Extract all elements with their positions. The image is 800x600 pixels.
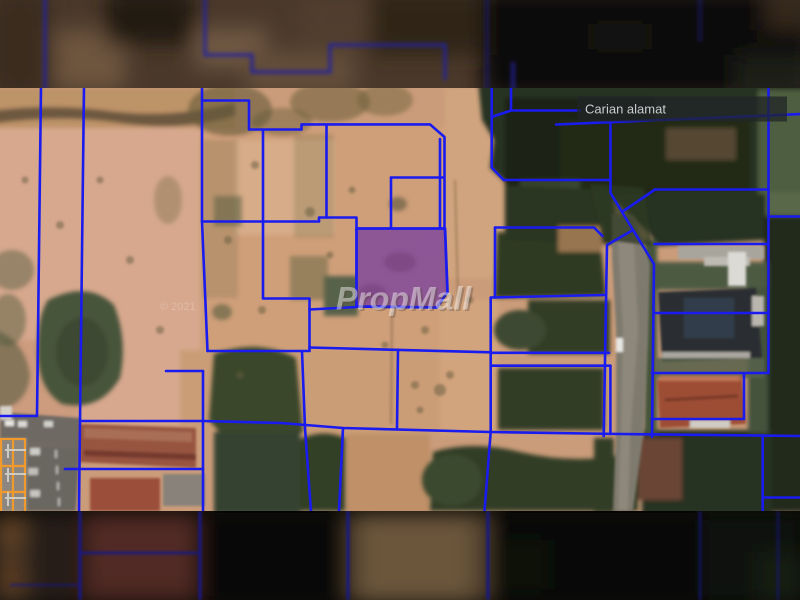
svg-text:Carian alamat: Carian alamat <box>585 102 666 117</box>
svg-text:PropMall: PropMall <box>336 281 472 317</box>
svg-text:© 2021: © 2021 <box>160 301 196 313</box>
